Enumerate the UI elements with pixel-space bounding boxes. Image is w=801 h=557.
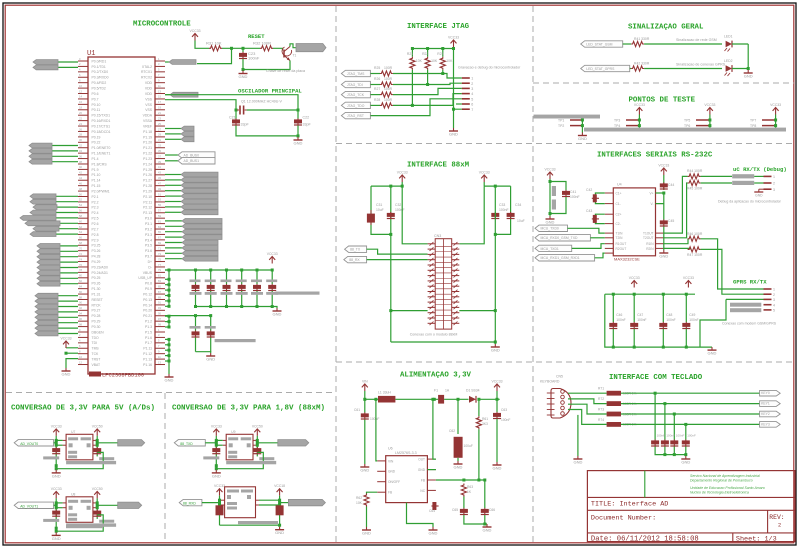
svg-text:P0.25: P0.25 <box>92 276 101 280</box>
svg-text:P3.3: P3.3 <box>145 233 152 237</box>
svg-text:P1.31: P1.31 <box>92 292 101 296</box>
svg-text:Servico Nacional de Aprendizag: Servico Nacional de Aprendizagem Industr… <box>690 474 760 478</box>
svg-text:P2.7: P2.7 <box>92 227 99 231</box>
svg-text:AD_BUS0: AD_BUS0 <box>184 153 200 157</box>
svg-text:ALIMENTAÇAO 3,3V: ALIMENTAÇAO 3,3V <box>400 371 472 379</box>
svg-text:TP7: TP7 <box>750 119 756 123</box>
svg-text:GND: GND <box>212 473 221 478</box>
svg-text:Chave de reset da placa: Chave de reset da placa <box>266 69 305 73</box>
svg-text:C49: C49 <box>689 313 695 317</box>
svg-text:TP2: TP2 <box>558 124 564 128</box>
svg-text:100nF: 100nF <box>637 318 646 322</box>
svg-text:100uF: 100uF <box>464 444 473 448</box>
svg-text:100R: 100R <box>384 66 393 70</box>
svg-text:GND: GND <box>578 136 587 141</box>
svg-text:R47 100R: R47 100R <box>687 253 703 257</box>
svg-text:JTAG_TDI: JTAG_TDI <box>347 83 363 87</box>
svg-text:100R: 100R <box>384 87 393 91</box>
svg-text:VSS: VSS <box>145 103 153 107</box>
svg-text:TP8: TP8 <box>750 124 756 128</box>
svg-text:GND: GND <box>52 536 61 541</box>
svg-text:4: 4 <box>773 303 775 307</box>
svg-text:R45 100R: R45 100R <box>687 187 703 191</box>
svg-text:INTERFACE 88xM: INTERFACE 88xM <box>407 162 470 170</box>
svg-text:100nF: 100nF <box>666 434 675 438</box>
svg-text:GND: GND <box>62 372 71 377</box>
svg-text:U8: U8 <box>71 492 75 496</box>
svg-text:100R: 100R <box>384 98 393 102</box>
svg-text:P3.4: P3.4 <box>145 238 152 242</box>
svg-text:P0.14: P0.14 <box>143 303 152 307</box>
svg-text:INTERFACE COM TECLADO: INTERFACE COM TECLADO <box>609 374 703 382</box>
svg-text:C2+: C2+ <box>616 213 622 217</box>
svg-text:P0.1/TD1: P0.1/TD1 <box>92 65 106 69</box>
svg-text:P0.29: P0.29 <box>92 320 101 324</box>
svg-text:C48: C48 <box>666 313 672 317</box>
svg-text:P0.11: P0.11 <box>92 108 101 112</box>
svg-text:VCC33: VCC33 <box>545 168 556 172</box>
svg-text:AD_BUS1: AD_BUS1 <box>184 159 200 163</box>
svg-text:5: 5 <box>773 309 775 313</box>
svg-text:D1 SS34: D1 SS34 <box>466 389 480 393</box>
svg-text:R1IN: R1IN <box>646 242 654 246</box>
svg-text:VCC50: VCC50 <box>92 424 103 428</box>
svg-text:Sinalizacao de conexao GPRS: Sinalizacao de conexao GPRS <box>676 63 726 67</box>
svg-text:1: 1 <box>773 175 775 179</box>
svg-text:P1.6: P1.6 <box>145 336 152 340</box>
svg-text:4: 4 <box>471 92 473 96</box>
svg-text:VCC33: VCC33 <box>214 484 225 488</box>
svg-text:VCC33: VCC33 <box>683 276 694 280</box>
svg-text:2: 2 <box>773 182 775 186</box>
svg-text:VCC33: VCC33 <box>61 337 72 341</box>
svg-text:GND: GND <box>681 460 690 465</box>
svg-text:C42: C42 <box>586 188 592 192</box>
svg-text:CONVERSAO DE 3,3V PARA 1,8V (8: CONVERSAO DE 3,3V PARA 1,8V (88xM) <box>172 405 325 413</box>
svg-text:P4.29: P4.29 <box>92 260 101 264</box>
svg-text:uC RX/TX (Debug): uC RX/TX (Debug) <box>733 166 787 173</box>
svg-text:P1.16: P1.16 <box>143 363 152 367</box>
svg-text:AD_VOUT1: AD_VOUT1 <box>20 504 38 508</box>
svg-text:C22: C22 <box>303 116 310 120</box>
svg-text:P1.15: P1.15 <box>92 184 101 188</box>
svg-text:VCC33: VCC33 <box>51 487 62 491</box>
svg-text:P3.25: P3.25 <box>92 244 101 248</box>
svg-text:T1IN: T1IN <box>616 232 624 236</box>
svg-text:VIN: VIN <box>362 380 368 384</box>
svg-text:V+: V+ <box>650 191 654 195</box>
svg-text:5: 5 <box>471 97 473 101</box>
svg-text:LM2576S-3.3: LM2576S-3.3 <box>395 451 417 455</box>
svg-text:GND: GND <box>360 468 369 473</box>
svg-text:P0.15/TXD1: P0.15/TXD1 <box>92 114 111 118</box>
svg-text:P2.9: P2.9 <box>92 238 99 242</box>
svg-text:JTAG_TDO: JTAG_TDO <box>347 104 365 108</box>
svg-text:TP5: TP5 <box>684 119 690 123</box>
svg-text:100nF: 100nF <box>499 208 509 212</box>
svg-text:P0.6: P0.6 <box>92 92 99 96</box>
svg-text:100nF: 100nF <box>689 318 698 322</box>
svg-text:33pF: 33pF <box>241 123 250 127</box>
svg-text:P1.24: P1.24 <box>143 162 152 166</box>
svg-text:KEY0: KEY0 <box>761 391 770 395</box>
svg-text:P0.12: P0.12 <box>143 292 152 296</box>
svg-text:R42 330R: R42 330R <box>634 62 650 66</box>
svg-text:R21: R21 <box>407 52 413 56</box>
svg-text:XTAL2: XTAL2 <box>142 65 152 69</box>
svg-text:C61: C61 <box>354 408 360 412</box>
svg-text:RTCK: RTCK <box>92 303 102 307</box>
svg-text:TP1: TP1 <box>558 119 564 123</box>
svg-text:R23: R23 <box>437 52 443 56</box>
svg-text:NC: NC <box>420 489 425 493</box>
svg-text:TP3: TP3 <box>614 119 620 123</box>
svg-text:88_TXD: 88_TXD <box>180 442 193 446</box>
svg-text:P1.20: P1.20 <box>143 141 152 145</box>
svg-text:10uF: 10uF <box>376 208 384 212</box>
svg-text:100nF: 100nF <box>666 318 675 322</box>
svg-text:10K: 10K <box>416 59 423 63</box>
svg-text:VCC33: VCC33 <box>492 380 503 384</box>
svg-text:R63: R63 <box>467 485 473 489</box>
svg-text:P1.2: P1.2 <box>145 320 152 324</box>
svg-text:VCC33: VCC33 <box>397 171 408 175</box>
svg-text:P0.22: P0.22 <box>92 141 101 145</box>
svg-text:GND: GND <box>491 348 500 353</box>
svg-text:P1.4: P1.4 <box>92 157 99 161</box>
svg-text:R22: R22 <box>422 52 428 56</box>
svg-text:C1-: C1- <box>616 202 621 206</box>
svg-text:GND: GND <box>449 132 458 137</box>
svg-text:TDO: TDO <box>92 336 100 340</box>
svg-text:CN5: CN5 <box>556 375 563 379</box>
svg-text:VCC33: VCC33 <box>629 276 640 280</box>
svg-text:P0.5/TD2: P0.5/TD2 <box>92 87 106 91</box>
svg-text:GND: GND <box>659 254 668 259</box>
svg-text:U6: U6 <box>388 447 393 451</box>
svg-text:VBAT: VBAT <box>92 363 101 367</box>
svg-text:Q1 12.000MHZ HC49U-V: Q1 12.000MHZ HC49U-V <box>241 100 283 104</box>
svg-text:VCC18: VCC18 <box>274 484 285 488</box>
svg-text:GPRS RX/TX: GPRS RX/TX <box>733 278 767 285</box>
svg-text:CONVERSAO DE 3,3V PARA 5V (A/D: CONVERSAO DE 3,3V PARA 5V (A/Ds) <box>11 405 155 413</box>
svg-text:LED1: LED1 <box>724 35 733 39</box>
svg-text:C21: C21 <box>229 116 236 120</box>
svg-text:Unidade de Educacao Profission: Unidade de Educacao Profissional Santo A… <box>690 486 765 490</box>
svg-text:Conexao com o modulo 88xM: Conexao com o modulo 88xM <box>410 333 458 337</box>
svg-text:Document Number:: Document Number: <box>591 515 656 523</box>
svg-text:Sheet: 1/3: Sheet: 1/3 <box>736 535 777 543</box>
svg-text:P0.8: P0.8 <box>145 282 152 286</box>
svg-text:Debug da aplicacao do microcon: Debug da aplicacao do microcontrolador <box>718 200 782 204</box>
svg-text:P1.10: P1.10 <box>92 173 101 177</box>
svg-text:R73: R73 <box>598 408 604 412</box>
svg-text:D+: D+ <box>148 260 152 264</box>
svg-text:100nF: 100nF <box>676 434 685 438</box>
svg-text:P0.7: P0.7 <box>92 97 99 101</box>
svg-text:RTCX2: RTCX2 <box>141 76 152 80</box>
svg-text:VCC33: VCC33 <box>634 103 645 107</box>
svg-text:VDD: VDD <box>145 81 153 85</box>
svg-text:GND: GND <box>546 220 555 225</box>
svg-text:P0.27: P0.27 <box>92 309 101 313</box>
svg-text:ON/OFF: ON/OFF <box>388 480 400 484</box>
svg-text:GND: GND <box>744 74 753 79</box>
svg-text:P1.21: P1.21 <box>143 146 152 150</box>
svg-text:P0.20: P0.20 <box>143 309 152 313</box>
svg-text:FB: FB <box>421 478 425 482</box>
svg-text:1: 1 <box>773 288 775 292</box>
svg-text:GND: GND <box>239 74 248 79</box>
svg-text:JTAG_TCK: JTAG_TCK <box>347 93 365 97</box>
svg-text:T2OUT: T2OUT <box>643 236 654 240</box>
svg-text:P0.16/RXD1: P0.16/RXD1 <box>92 119 111 123</box>
svg-text:P1.11: P1.11 <box>143 347 152 351</box>
svg-text:100uF: 100uF <box>370 417 379 421</box>
svg-text:C46: C46 <box>616 313 622 317</box>
svg-text:VCC33: VCC33 <box>658 164 669 168</box>
svg-text:VSS: VSS <box>145 108 153 112</box>
svg-text:R61: R61 <box>482 417 488 421</box>
svg-text:C41: C41 <box>570 190 576 194</box>
svg-text:C66: C66 <box>489 508 495 512</box>
svg-text:P2.12: P2.12 <box>143 206 152 210</box>
svg-text:P1.3: P1.3 <box>145 325 152 329</box>
svg-text:C63: C63 <box>501 408 507 412</box>
svg-text:R26: R26 <box>374 77 380 81</box>
svg-text:P0.10: P0.10 <box>92 103 101 107</box>
svg-text:Nucleo de Tecnologia Eletroele: Nucleo de Tecnologia Eletroeletronica <box>690 491 749 495</box>
svg-text:7: 7 <box>471 108 473 112</box>
svg-text:P2.0/PWM1: P2.0/PWM1 <box>92 189 110 193</box>
svg-text:Gravacao e debug do microcontr: Gravacao e debug do microcontrolador <box>458 66 521 70</box>
svg-text:VCC33: VCC33 <box>448 36 459 40</box>
svg-text:3: 3 <box>773 188 775 192</box>
svg-text:MICROCONTROLE: MICROCONTROLE <box>133 21 191 29</box>
svg-text:LPC2368FBD100: LPC2368FBD100 <box>102 373 144 379</box>
svg-text:VCC33: VCC33 <box>267 252 278 256</box>
svg-text:R74: R74 <box>598 418 604 422</box>
svg-text:P0.0/RD1: P0.0/RD1 <box>92 59 107 63</box>
svg-text:L1 33uH: L1 33uH <box>378 391 391 395</box>
svg-text:INTERFACES SERIAIS RS-232C: INTERFACES SERIAIS RS-232C <box>597 152 713 160</box>
svg-text:Conexao com modem GSM/GPRS: Conexao com modem GSM/GPRS <box>722 321 777 325</box>
svg-text:P1.27: P1.27 <box>143 179 152 183</box>
svg-text:P3.26: P3.26 <box>92 249 101 253</box>
svg-text:GND: GND <box>362 531 371 536</box>
svg-text:USB_UP: USB_UP <box>138 276 152 280</box>
svg-text:P0.9: P0.9 <box>145 287 152 291</box>
svg-text:P4.28: P4.28 <box>92 255 101 259</box>
svg-text:R25: R25 <box>374 66 380 70</box>
svg-text:P1.14: P1.14 <box>92 179 101 183</box>
svg-text:TITLE: Interface AD: TITLE: Interface AD <box>591 501 669 509</box>
svg-text:GND: GND <box>493 466 502 471</box>
svg-text:R27: R27 <box>374 87 380 91</box>
svg-text:R1OUT: R1OUT <box>616 242 627 246</box>
svg-text:R2IN: R2IN <box>646 247 654 251</box>
svg-text:C31: C31 <box>376 203 382 207</box>
svg-text:2: 2 <box>778 523 781 529</box>
svg-text:C32: C32 <box>395 203 401 207</box>
svg-text:JTAG_RST: JTAG_RST <box>347 114 364 118</box>
svg-text:LED_STAT_GPRS: LED_STAT_GPRS <box>586 67 615 71</box>
svg-text:VSSA: VSSA <box>143 119 153 123</box>
svg-text:P0.17/CTS1: P0.17/CTS1 <box>92 124 111 128</box>
svg-text:TP4: TP4 <box>614 124 620 128</box>
svg-text:10K: 10K <box>431 59 438 63</box>
svg-text:100nF: 100nF <box>657 434 666 438</box>
svg-text:100nF: 100nF <box>616 318 625 322</box>
svg-text:VCC33: VCC33 <box>211 424 222 428</box>
svg-text:P0.13: P0.13 <box>143 298 152 302</box>
svg-text:INTERFACE JTAG: INTERFACE JTAG <box>407 23 470 31</box>
svg-text:V-: V- <box>650 202 653 206</box>
svg-text:2: 2 <box>471 82 473 86</box>
svg-text:P0.28: P0.28 <box>92 314 101 318</box>
svg-text:TDI: TDI <box>92 341 98 345</box>
svg-text:P0.18/DCD1: P0.18/DCD1 <box>92 130 111 134</box>
svg-text:P3.6: P3.6 <box>145 249 152 253</box>
svg-text:C43: C43 <box>586 209 592 213</box>
svg-text:VDD: VDD <box>145 87 153 91</box>
svg-text:P1.26: P1.26 <box>143 173 152 177</box>
svg-text:VBUS: VBUS <box>143 271 153 275</box>
svg-text:TP6: TP6 <box>684 124 690 128</box>
svg-text:JTAG_TMS: JTAG_TMS <box>347 72 365 76</box>
svg-text:88_RXD: 88_RXD <box>183 502 196 506</box>
svg-text:88_RX: 88_RX <box>349 258 360 262</box>
svg-text:VCC33: VCC33 <box>770 103 781 107</box>
svg-text:P1.22: P1.22 <box>143 152 152 156</box>
svg-text:VDDA: VDDA <box>143 114 153 118</box>
svg-text:C64: C64 <box>429 509 435 513</box>
svg-text:P3.0: P3.0 <box>145 217 152 221</box>
svg-text:P2.3: P2.3 <box>92 206 99 210</box>
svg-text:MCU_TXD0: MCU_TXD0 <box>541 227 559 231</box>
svg-text:F1: F1 <box>434 389 438 393</box>
svg-text:C45: C45 <box>668 219 674 223</box>
svg-text:P0.3/RXD0: P0.3/RXD0 <box>92 76 109 80</box>
svg-text:P1.29: P1.29 <box>143 189 152 193</box>
svg-text:R28: R28 <box>374 98 380 102</box>
svg-text:KEY3: KEY3 <box>761 422 770 426</box>
svg-text:DBGEN: DBGEN <box>92 330 105 334</box>
svg-text:100nF: 100nF <box>248 56 260 61</box>
svg-text:MCU_RXD0_GSM_TXD: MCU_RXD0_GSM_TXD <box>541 236 578 240</box>
svg-text:Sinalizacao de rede GSM: Sinalizacao de rede GSM <box>676 38 717 42</box>
svg-text:P1.5: P1.5 <box>145 330 152 334</box>
svg-text:R2OUT: R2OUT <box>616 247 627 251</box>
svg-text:P0.21: P0.21 <box>143 314 152 318</box>
svg-text:R46 100R: R46 100R <box>687 232 703 236</box>
svg-text:P3.1: P3.1 <box>145 222 152 226</box>
svg-text:P1.13: P1.13 <box>143 358 152 362</box>
svg-text:GND: GND <box>429 531 438 536</box>
svg-text:C47: C47 <box>637 313 643 317</box>
svg-text:CN3: CN3 <box>434 234 441 238</box>
svg-text:1A: 1A <box>445 389 450 393</box>
svg-text:U4: U4 <box>617 183 622 187</box>
svg-text:VCC33: VCC33 <box>479 171 490 175</box>
svg-text:P2.11: P2.11 <box>143 200 152 204</box>
svg-text:MCU_TXD1: MCU_TXD1 <box>541 247 559 251</box>
svg-text:2: 2 <box>773 293 775 297</box>
svg-text:1: 1 <box>471 77 473 81</box>
svg-text:P1.30: P1.30 <box>92 287 101 291</box>
svg-text:Departamento Regional de Perna: Departamento Regional de Pernambuco <box>690 479 753 483</box>
svg-text:R71: R71 <box>598 387 604 391</box>
svg-text:100R: 100R <box>384 77 393 81</box>
svg-text:P1.25: P1.25 <box>143 168 152 172</box>
svg-text:P1.28: P1.28 <box>143 184 152 188</box>
svg-text:P3.5: P3.5 <box>145 244 152 248</box>
svg-text:GND: GND <box>454 465 463 470</box>
svg-text:10K: 10K <box>446 59 453 63</box>
svg-text:C44: C44 <box>668 183 674 187</box>
svg-text:10uF: 10uF <box>517 219 525 223</box>
svg-text:6: 6 <box>471 103 473 107</box>
svg-text:TCK: TCK <box>92 352 100 356</box>
svg-text:P1.1/ENET1: P1.1/ENET1 <box>92 152 111 156</box>
svg-text:GND: GND <box>273 312 282 317</box>
svg-text:U7: U7 <box>71 430 75 434</box>
svg-text:VCC33: VCC33 <box>51 424 62 428</box>
svg-text:P0.23/AD0: P0.23/AD0 <box>92 265 109 269</box>
svg-text:P1.19: P1.19 <box>143 135 152 139</box>
svg-text:GND: GND <box>275 530 284 535</box>
svg-text:GND: GND <box>206 357 215 362</box>
svg-text:GND: GND <box>755 194 763 198</box>
svg-text:P2.5: P2.5 <box>92 217 99 221</box>
svg-text:GND: GND <box>165 378 174 383</box>
svg-text:33pF: 33pF <box>303 123 312 127</box>
svg-text:P1.23: P1.23 <box>143 157 152 161</box>
svg-text:RESET: RESET <box>248 33 265 40</box>
svg-text:P1.8/CRS: P1.8/CRS <box>92 162 108 166</box>
svg-text:P0.24/AD1: P0.24/AD1 <box>92 271 109 275</box>
svg-text:VCC50: VCC50 <box>252 424 263 428</box>
svg-text:REV:: REV: <box>769 514 784 521</box>
svg-text:VREF: VREF <box>143 124 152 128</box>
svg-text:C34: C34 <box>515 203 521 207</box>
svg-text:R72: R72 <box>598 397 604 401</box>
svg-text:P0.30: P0.30 <box>92 325 101 329</box>
svg-text:GND: GND <box>388 470 396 474</box>
svg-text:P1.18: P1.18 <box>143 130 152 134</box>
svg-text:88_TX: 88_TX <box>350 248 361 252</box>
svg-text:KEY2: KEY2 <box>761 412 770 416</box>
svg-text:3: 3 <box>471 87 473 91</box>
svg-text:RESET: RESET <box>92 298 103 302</box>
svg-text:P3.2: P3.2 <box>145 227 152 231</box>
svg-text:R32 100R: R32 100R <box>253 41 271 46</box>
svg-text:LED2: LED2 <box>724 59 733 63</box>
svg-text:P3.7: P3.7 <box>145 255 152 259</box>
svg-text:P0.19: P0.19 <box>92 135 101 139</box>
svg-text:VCC50: VCC50 <box>92 487 103 491</box>
svg-text:SINALIZAÇAO GERAL: SINALIZAÇAO GERAL <box>628 24 704 32</box>
svg-text:GND: GND <box>294 141 303 146</box>
svg-text:VCC33: VCC33 <box>704 103 715 107</box>
svg-text:OSCILADOR PRINCIPAL: OSCILADOR PRINCIPAL <box>238 88 302 95</box>
svg-text:P2.10: P2.10 <box>143 195 152 199</box>
svg-text:100nF: 100nF <box>687 434 696 438</box>
svg-text:3K3: 3K3 <box>482 422 488 426</box>
svg-text:10K: 10K <box>356 501 363 505</box>
svg-text:GND: GND <box>418 468 426 472</box>
svg-text:VCC33: VCC33 <box>190 29 201 33</box>
